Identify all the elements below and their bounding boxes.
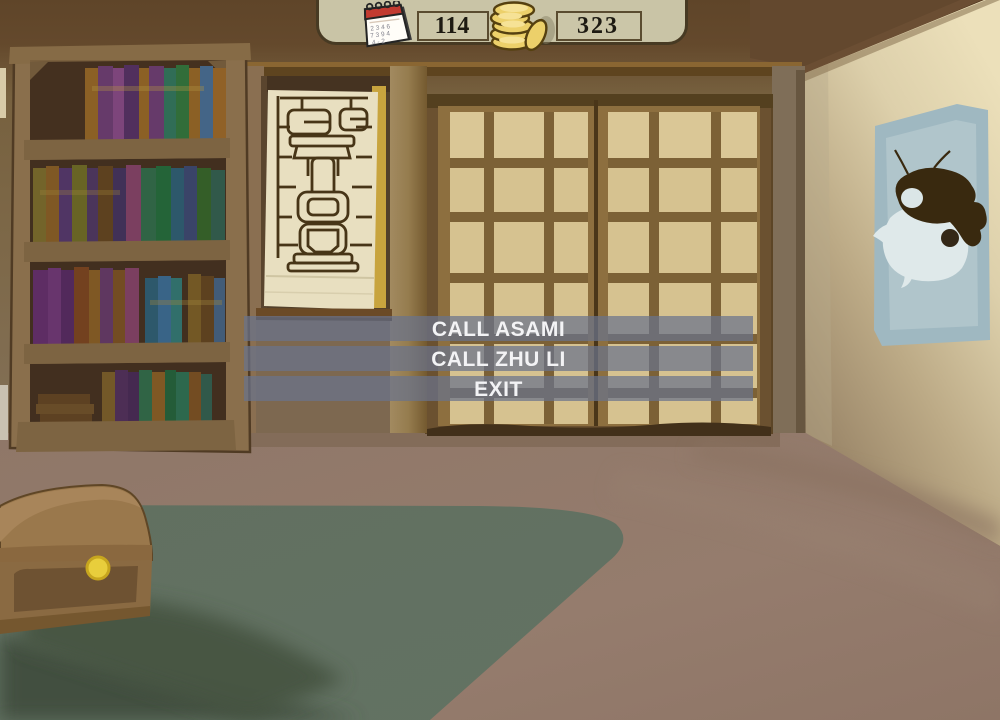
svg-text:4 - 2: 4 - 2 — [372, 38, 386, 47]
